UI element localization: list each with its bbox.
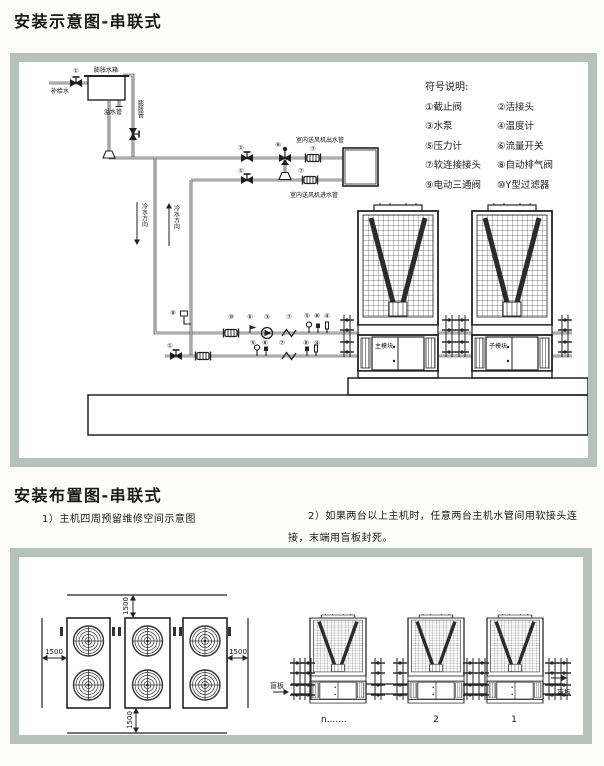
stop-valve-icon <box>241 174 253 184</box>
vent-return-mark: ⑧ <box>262 339 268 347</box>
drain-valve-mark: ① <box>167 342 173 350</box>
inlet-valve-mark: ① <box>238 167 244 175</box>
flex-break-icon <box>282 330 296 337</box>
legend: 符号说明: ①截止阀②活接头 ③水泵④温度计 ⑤压力计⑥流量开关 ⑦软连接接头⑧… <box>425 78 553 195</box>
thermo-supply-mark: ④ <box>324 312 330 320</box>
dimension-bottom: 1500 <box>126 708 139 733</box>
legend-title: 符号说明: <box>425 78 553 98</box>
flex-return-mark: ⑦ <box>279 339 285 347</box>
dimension-top: 1500 <box>122 595 136 618</box>
svg-text:1500: 1500 <box>122 597 130 615</box>
auto-vent-icon <box>305 347 309 357</box>
scanned-manual-page: { "section1": { "title": "安装示意图-串联式" }, … <box>0 0 604 766</box>
pressure-gauge-icon <box>306 322 311 333</box>
supply-water-label: 补给水 <box>51 87 69 95</box>
inlet-pipe-label: 室内送风机进水管 <box>290 191 338 199</box>
layout-panel: 1500 1500 1500 1500 <box>10 548 592 744</box>
flex-joint-icon <box>306 154 321 163</box>
filter-mark: ⑩ <box>228 313 234 321</box>
dimension-left: 1500 <box>42 648 67 661</box>
auto-vent-icon <box>181 311 192 324</box>
flow-direction-up: 冷水方向 <box>166 203 180 246</box>
fan-icon <box>190 626 220 656</box>
stop-valve-icon <box>170 350 182 360</box>
unit-label-2: 2 <box>433 715 439 725</box>
auto-vent-icon <box>316 324 320 334</box>
stop-valve-icon <box>70 77 82 87</box>
stop-valve-icon <box>129 128 139 140</box>
supply-valve-mark: ① <box>73 67 79 75</box>
note-2-line1: 2）如果两台以上主机时，任意两台主机水管间用软接头连 <box>308 507 577 522</box>
clearance-boundary <box>42 595 248 733</box>
sub-module-label: 子模块 <box>489 342 507 350</box>
flex-manifold <box>558 315 572 357</box>
fan-icon <box>74 670 104 700</box>
fan-icon <box>190 670 220 700</box>
unit-label-1: 1 <box>511 715 517 725</box>
heat-pump-unit <box>487 614 543 703</box>
legend-row: ⑦软连接接头⑧自动排气阀 <box>425 156 553 176</box>
indoor-fan-coil-unit <box>343 148 378 186</box>
flex-top-mark: ⑦ <box>310 145 316 153</box>
heat-pump-unit <box>310 614 366 703</box>
pressure-return-mark: ⑤ <box>250 339 256 347</box>
schematic-panel: 膨胀水箱 补给水 溢水管 膨胀管 ① ① ⑨ ⑦ ① ⑦ 室内送风机出水管 室内… <box>10 53 597 467</box>
unit-chain <box>290 614 571 703</box>
dimension-right: 1500 <box>227 648 248 661</box>
thermo-return-mark: ④ <box>314 339 320 347</box>
y-filter-icon <box>224 329 239 338</box>
unit-label-n: n....... <box>321 715 347 725</box>
svg-text:盲板: 盲板 <box>270 681 284 690</box>
vent-return2-mark: ⑧ <box>303 339 309 347</box>
svg-text:冷水方向: 冷水方向 <box>141 202 148 227</box>
fan-icon <box>133 626 163 656</box>
overflow-pipe-label: 溢水管 <box>104 108 122 116</box>
main-module-unit <box>358 203 438 378</box>
layout-diagram: 1500 1500 1500 1500 <box>19 557 583 735</box>
flex-manifold <box>442 315 456 357</box>
svg-text:1500: 1500 <box>126 711 134 729</box>
expansion-tank <box>84 76 129 158</box>
auto-vent-icon <box>264 347 268 357</box>
down-arrow-icon <box>134 240 140 246</box>
flex-supply-mark: ⑦ <box>286 313 292 321</box>
three-way-valve-icon <box>279 147 291 165</box>
svg-text:1500: 1500 <box>45 648 63 656</box>
flow-direction-down: 冷水方向 <box>134 202 148 245</box>
legend-row: ③水泵④温度计 <box>425 117 553 137</box>
heat-pump-unit <box>408 614 464 703</box>
outlet-pipe-label: 室内送风机出水管 <box>296 136 344 144</box>
sub-module-unit <box>472 203 552 378</box>
up-arrow-icon <box>166 203 172 209</box>
flex-break-icon <box>282 353 296 360</box>
legend-row: ①截止阀②活接头 <box>425 98 553 118</box>
legend-row: ⑤压力计⑥流量开关 <box>425 137 553 157</box>
stop-valve-icon <box>241 152 253 162</box>
outlet-valve-mark: ① <box>238 144 244 152</box>
note-1: 1）主机四周预留维修空间示意图 <box>42 510 196 525</box>
svg-text:盲板: 盲板 <box>557 688 571 697</box>
module-top-view <box>60 618 231 708</box>
expansion-pipe-label: 膨胀管 <box>137 99 144 119</box>
svg-text:冷水方向: 冷水方向 <box>173 204 180 229</box>
svg-text:1500: 1500 <box>229 648 247 656</box>
vent-supply-mark: ⑧ <box>314 312 320 320</box>
main-module-label: 主模块 <box>375 342 393 350</box>
flex-manifold <box>455 315 469 357</box>
pump-mark: ③ <box>264 313 270 321</box>
section2-title: 安装布置图-串联式 <box>14 482 162 506</box>
flex-joint-icon <box>303 176 318 185</box>
flow-switch-mark: ⑥ <box>247 313 253 321</box>
tank-stand-foot <box>103 151 115 158</box>
fan-icon <box>133 670 163 700</box>
flex-manifold <box>340 315 354 357</box>
blind-plate-left: 盲板 <box>270 681 289 695</box>
thermometer-icon <box>326 322 329 333</box>
tank-label: 膨胀水箱 <box>94 66 118 74</box>
brick-wall <box>88 395 588 435</box>
note-2-line2: 接，末端用盲板封死。 <box>288 529 393 544</box>
three-way-mark: ⑨ <box>275 141 281 149</box>
foundation-pad <box>348 378 588 395</box>
union-icon <box>196 352 211 361</box>
legend-row: ⑨电动三通阀⑩Y型过滤器 <box>425 176 553 196</box>
riser-vent-mark: ⑧ <box>170 309 176 317</box>
section1-title: 安装示意图-串联式 <box>14 8 162 32</box>
pressure-supply-mark: ⑤ <box>304 312 310 320</box>
bypass-foot <box>279 173 291 180</box>
fan-icon <box>74 626 104 656</box>
flex-bottom-mark: ⑦ <box>298 167 304 175</box>
